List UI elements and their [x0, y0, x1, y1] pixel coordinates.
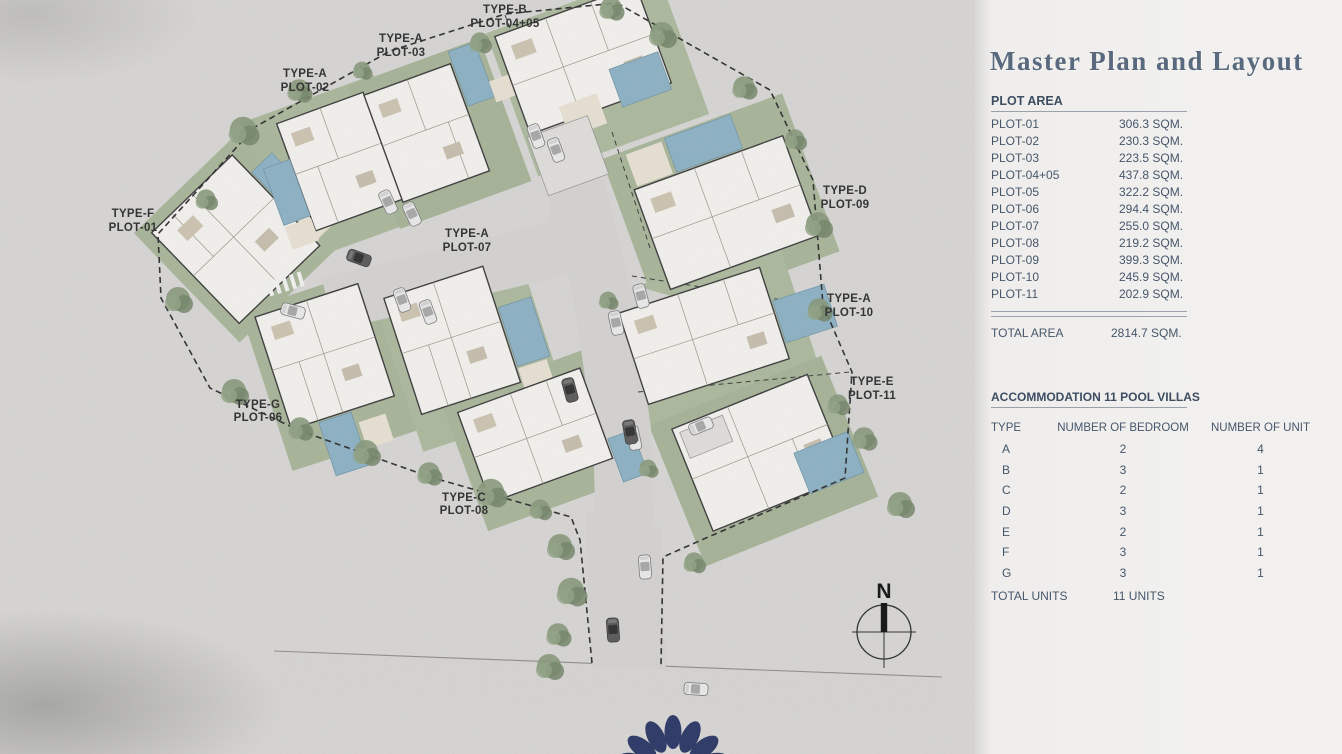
plot-name: PLOT-10 — [991, 270, 1119, 284]
total-rule — [991, 311, 1187, 317]
total-area-row: TOTAL AREA 2814.7 SQM. — [991, 326, 1211, 340]
plot-name: PLOT-04+05 — [991, 168, 1119, 182]
plot-value: 219.2 SQM. — [1119, 236, 1183, 250]
units-cell: 1 — [1193, 545, 1328, 559]
table-row: PLOT-09399.3 SQM. — [991, 251, 1211, 268]
table-row: B31 — [991, 460, 1336, 481]
total-area-value: 2814.7 SQM. — [1111, 326, 1182, 340]
units-cell: 1 — [1193, 525, 1328, 539]
table-row: PLOT-05322.2 SQM. — [991, 183, 1211, 200]
table-row: PLOT-07255.0 SQM. — [991, 217, 1211, 234]
plot-value: 322.2 SQM. — [1119, 185, 1183, 199]
total-units-value: 11 UNITS — [1113, 589, 1165, 603]
bedrooms-cell: 3 — [1053, 463, 1193, 477]
table-row: PLOT-03223.5 SQM. — [991, 149, 1211, 166]
table-row: E21 — [991, 521, 1336, 542]
type-cell: D — [991, 504, 1053, 518]
plot-value: 437.8 SQM. — [1119, 168, 1183, 182]
master-plan-page: TYPE-B PLOT-04+05 TYPE-A PLOT-03 TYPE-A … — [0, 0, 1342, 754]
plot-area-heading: PLOT AREA — [991, 94, 1211, 111]
plot-name: PLOT-06 — [991, 202, 1119, 216]
table-row: PLOT-06294.4 SQM. — [991, 200, 1211, 217]
type-cell: A — [991, 442, 1053, 456]
bedrooms-cell: 3 — [1053, 545, 1193, 559]
table-row: PLOT-02230.3 SQM. — [991, 132, 1211, 149]
plot-value: 306.3 SQM. — [1119, 117, 1183, 131]
noise-overlay — [0, 0, 975, 754]
table-header-row: TYPE NUMBER OF BEDROOM NUMBER OF UNIT — [991, 417, 1336, 439]
table-row: PLOT-08219.2 SQM. — [991, 234, 1211, 251]
heading-rule — [991, 111, 1187, 112]
table-row: A24 — [991, 439, 1336, 460]
plot-value: 245.9 SQM. — [1119, 270, 1183, 284]
accommodation-table: ACCOMMODATION 11 POOL VILLAS TYPE NUMBER… — [991, 390, 1336, 603]
info-panel: Master Plan and Layout PLOT AREA PLOT-01… — [975, 0, 1342, 754]
type-cell: B — [991, 463, 1053, 477]
plot-name: PLOT-11 — [991, 287, 1119, 301]
plot-value: 294.4 SQM. — [1119, 202, 1183, 216]
table-row: PLOT-04+05437.8 SQM. — [991, 166, 1211, 183]
total-units-label: TOTAL UNITS — [991, 589, 1077, 603]
bedrooms-cell: 2 — [1053, 525, 1193, 539]
plot-name: PLOT-08 — [991, 236, 1119, 250]
total-units-row: TOTAL UNITS 11 UNITS — [991, 589, 1336, 603]
col-type: TYPE — [991, 422, 1053, 434]
col-bedrooms: NUMBER OF BEDROOM — [1053, 422, 1193, 434]
plot-name: PLOT-09 — [991, 253, 1119, 267]
units-cell: 1 — [1193, 483, 1328, 497]
table-row: D31 — [991, 501, 1336, 522]
plot-name: PLOT-01 — [991, 117, 1119, 131]
page-title: Master Plan and Layout — [990, 46, 1304, 77]
type-cell: G — [991, 566, 1053, 580]
bedrooms-cell: 2 — [1053, 442, 1193, 456]
plot-value: 255.0 SQM. — [1119, 219, 1183, 233]
total-area-label: TOTAL AREA — [991, 326, 1111, 340]
bedrooms-cell: 3 — [1053, 504, 1193, 518]
table-row: G31 — [991, 563, 1336, 584]
plot-value: 202.9 SQM. — [1119, 287, 1183, 301]
plot-value: 399.3 SQM. — [1119, 253, 1183, 267]
bedrooms-cell: 3 — [1053, 566, 1193, 580]
plot-value: 223.5 SQM. — [1119, 151, 1183, 165]
heading-rule — [991, 407, 1187, 408]
table-row: F31 — [991, 542, 1336, 563]
plot-name: PLOT-02 — [991, 134, 1119, 148]
table-row: PLOT-10245.9 SQM. — [991, 268, 1211, 285]
plot-name: PLOT-05 — [991, 185, 1119, 199]
accommodation-heading: ACCOMMODATION 11 POOL VILLAS — [991, 390, 1336, 407]
plot-value: 230.3 SQM. — [1119, 134, 1183, 148]
units-cell: 1 — [1193, 463, 1328, 477]
type-cell: F — [991, 545, 1053, 559]
table-row: PLOT-01306.3 SQM. — [991, 115, 1211, 132]
col-units: NUMBER OF UNIT — [1193, 422, 1328, 434]
units-cell: 1 — [1193, 566, 1328, 580]
table-row: C21 — [991, 480, 1336, 501]
type-cell: E — [991, 525, 1053, 539]
units-cell: 1 — [1193, 504, 1328, 518]
bedrooms-cell: 2 — [1053, 483, 1193, 497]
units-cell: 4 — [1193, 442, 1328, 456]
table-row: PLOT-11202.9 SQM. — [991, 285, 1211, 302]
plot-area-table: PLOT AREA PLOT-01306.3 SQM. PLOT-02230.3… — [991, 94, 1211, 340]
plot-name: PLOT-07 — [991, 219, 1119, 233]
type-cell: C — [991, 483, 1053, 497]
plot-name: PLOT-03 — [991, 151, 1119, 165]
